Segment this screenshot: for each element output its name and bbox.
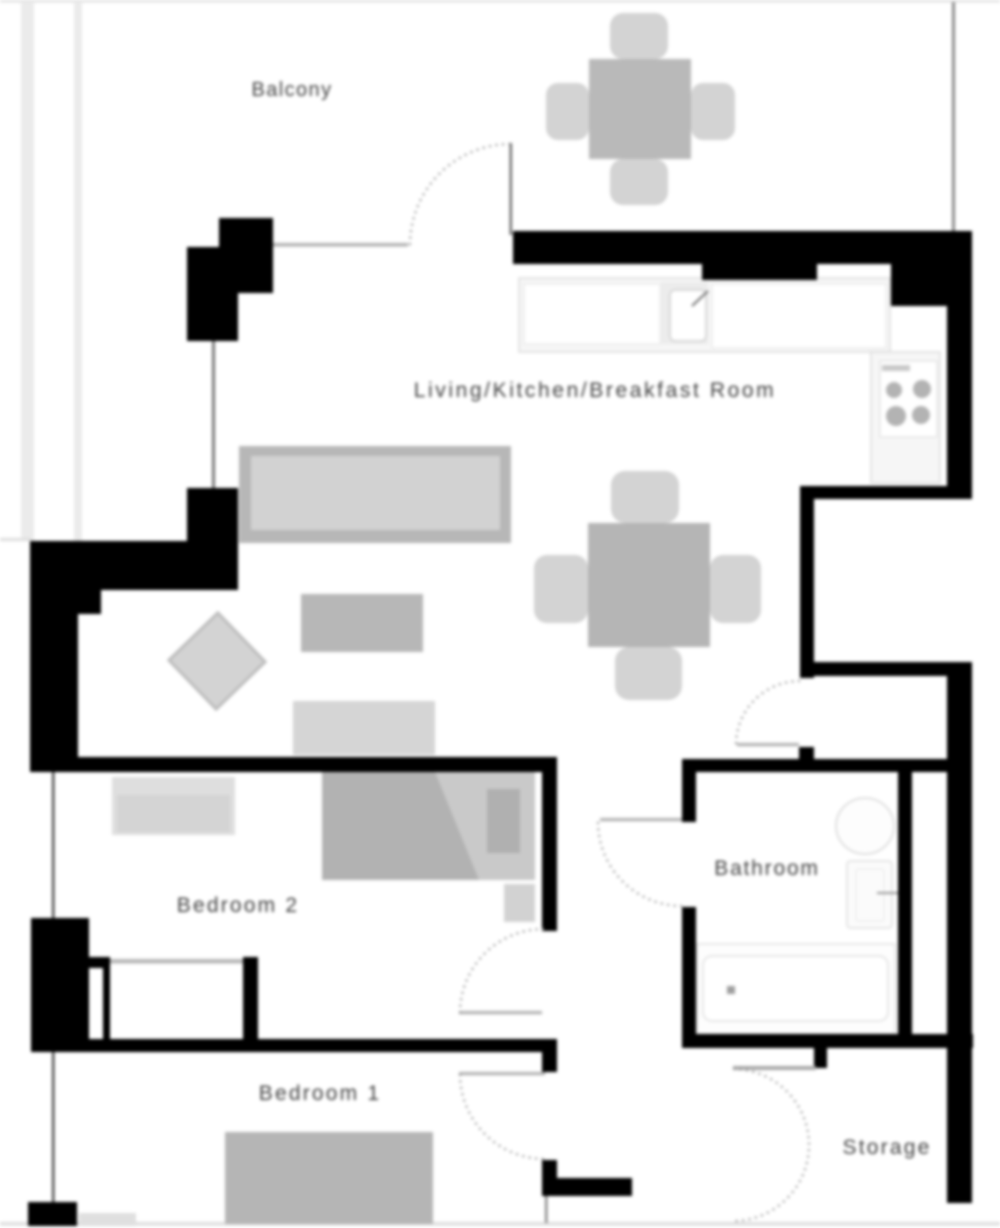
svg-text:Bathroom: Bathroom (714, 857, 819, 880)
svg-text:Balcony: Balcony (252, 79, 333, 101)
svg-text:Living/Kitchen/Breakfast Room: Living/Kitchen/Breakfast Room (414, 379, 777, 402)
svg-text:Bedroom 1: Bedroom 1 (259, 1082, 382, 1105)
svg-text:Storage: Storage (843, 1136, 932, 1159)
svg-text:Bedroom 2: Bedroom 2 (177, 894, 300, 917)
